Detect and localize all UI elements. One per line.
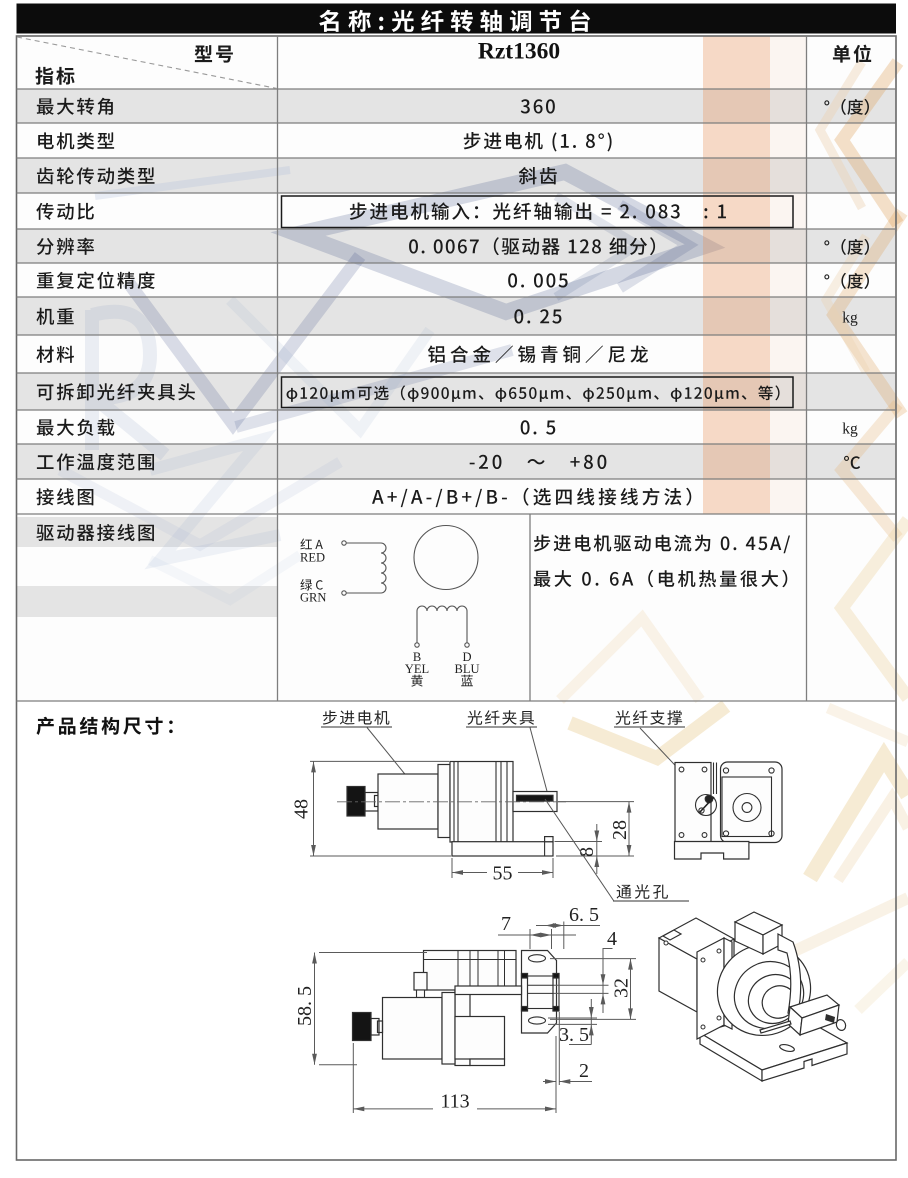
svg-text:6. 5: 6. 5 (569, 904, 599, 926)
svg-text:3. 5: 3. 5 (559, 1024, 589, 1046)
svg-text:55: 55 (493, 863, 513, 885)
svg-text:kg: kg (842, 309, 858, 326)
svg-text:2: 2 (579, 1060, 589, 1082)
svg-text:32: 32 (611, 978, 633, 998)
svg-text:113: 113 (440, 1091, 469, 1113)
svg-text:BLU: BLU (455, 662, 480, 676)
svg-text:RED: RED (300, 551, 325, 565)
svg-text:28: 28 (609, 820, 631, 840)
svg-text:48: 48 (291, 799, 313, 819)
svg-text:4: 4 (607, 928, 617, 950)
svg-text:8: 8 (576, 847, 598, 857)
svg-text:58. 5: 58. 5 (294, 986, 316, 1026)
svg-text:YEL: YEL (405, 662, 429, 676)
svg-text:kg: kg (842, 420, 858, 437)
svg-text:GRN: GRN (300, 591, 326, 605)
svg-text:Rzt1360: Rzt1360 (478, 39, 560, 65)
svg-text:7: 7 (501, 913, 511, 935)
